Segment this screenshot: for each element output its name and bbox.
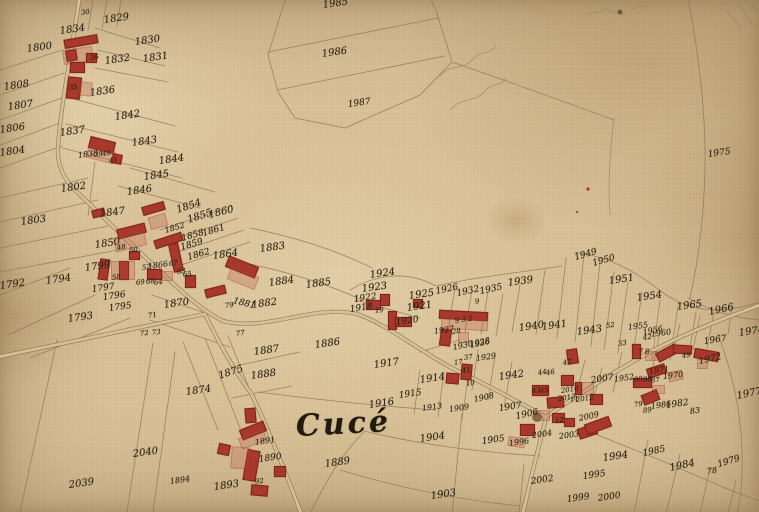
parcel-number-label: 1999	[566, 493, 590, 505]
parcel-number-label: 10	[466, 380, 476, 388]
parcel-number-label: 1866	[147, 260, 168, 271]
parcel-number-label: 1890	[258, 453, 282, 465]
parcel-number-label: 1793	[67, 312, 94, 325]
parcel-number-label: 71	[148, 312, 158, 320]
parcel-number-layer: 1834182930180018303618321831180835183618…	[0, 0, 759, 512]
parcel-number-label: 41	[462, 367, 472, 375]
parcel-number-label: 1994	[602, 451, 629, 464]
parcel-number-label: 1804	[0, 146, 26, 159]
parcel-number-label: 49	[682, 352, 692, 360]
parcel-number-label: 35	[69, 84, 79, 92]
parcel-number-label: 1975	[707, 148, 731, 160]
parcel-number-label: 1844	[158, 154, 185, 167]
parcel-number-label: 2000	[597, 492, 621, 504]
parcel-number-label: 1941	[541, 320, 568, 333]
parcel-number-label: 48	[117, 244, 127, 252]
parcel-number-label: 72	[140, 330, 150, 338]
parcel-number-label: 1974	[738, 326, 759, 339]
parcel-number-label: 1909	[448, 403, 469, 414]
parcel-number-label: 1972	[698, 353, 722, 367]
parcel-number-label: 1870	[163, 298, 190, 311]
parcel-number-label: 1965	[676, 300, 703, 313]
parcel-number-label: 17	[454, 359, 464, 367]
parcel-number-label: 1831	[142, 52, 169, 65]
parcel-number-label: 2009	[578, 411, 600, 423]
parcel-number-label: 64	[154, 279, 164, 287]
parcel-number-label: 1986	[321, 47, 348, 60]
parcel-number-label: 1995	[582, 470, 606, 482]
parcel-number-label: 87	[651, 377, 661, 385]
cadastral-map: 1834182930180018303618321831180835183618…	[0, 0, 759, 512]
parcel-number-label: 1860	[208, 205, 235, 221]
parcel-number-label: 2007	[590, 374, 614, 386]
parcel-number-label: 1802	[60, 182, 87, 195]
parcel-number-label: 1875	[217, 364, 244, 381]
parcel-number-label: 46	[546, 369, 556, 377]
parcel-number-label: 1807	[7, 100, 34, 113]
parcel-number-label: 1935	[479, 283, 503, 297]
parcel-number-label: 19	[375, 307, 385, 315]
parcel-number-label: 1954	[636, 291, 663, 304]
parcel-number-label: 1929	[475, 352, 496, 363]
parcel-number-label: 1996	[508, 437, 529, 448]
parcel-number-label: 1837	[59, 126, 86, 139]
parcel-number-label: 2003	[558, 430, 579, 441]
parcel-number-label: 1884	[268, 276, 295, 289]
parcel-number-label: 1792	[0, 279, 26, 292]
parcel-number-label: 1882	[251, 298, 278, 311]
parcel-number-label: 1806	[0, 123, 26, 136]
parcel-number-label: 1885	[305, 278, 332, 291]
parcel-number-label: 58	[112, 274, 122, 282]
parcel-number-label: 47	[563, 359, 573, 367]
parcel-number-label: 1914	[419, 373, 446, 386]
parcel-number-label: 1966	[708, 303, 735, 318]
parcel-number-label: 1834	[59, 24, 86, 37]
parcel-number-label: 1987	[347, 98, 371, 110]
parcel-number-label: 1845	[143, 170, 170, 183]
parcel-number-label: 1904	[419, 432, 446, 445]
parcel-number-label: 45	[540, 387, 550, 395]
parcel-number-label: 73	[152, 329, 162, 337]
parcel-number-label: 1921	[406, 301, 433, 314]
parcel-number-label: 2040	[132, 447, 159, 460]
parcel-number-label: 1967	[703, 335, 727, 347]
parcel-number-label: 1891	[254, 436, 275, 447]
parcel-number-label: 8	[645, 348, 650, 356]
parcel-number-label: 50	[129, 247, 139, 255]
parcel-number-label: 1908	[473, 392, 495, 404]
parcel-number-label: 1888	[250, 369, 277, 382]
parcel-number-label: 1970	[663, 371, 684, 381]
parcel-number-label: 67	[169, 260, 179, 268]
parcel-number-label: 1874	[185, 385, 212, 398]
parcel-number-label: 1847	[99, 207, 126, 220]
parcel-number-label: 1829	[103, 13, 130, 26]
parcel-number-label: 1920	[395, 316, 419, 328]
parcel-number-label: 1830	[134, 35, 161, 48]
parcel-number-label: 1846	[126, 185, 153, 198]
parcel-number-label: 1842	[114, 110, 141, 123]
parcel-number-label: 1794	[45, 274, 72, 287]
parcel-number-label: 9 3 2	[455, 316, 474, 325]
parcel-number-label: 1906	[515, 408, 539, 422]
parcel-number-label: 1803	[20, 215, 47, 228]
parcel-number-label: 1800	[26, 42, 53, 55]
parcel-number-label: 69	[136, 279, 146, 287]
place-name-label: Cucé	[295, 407, 391, 442]
parcel-number-label: 1977	[736, 387, 759, 402]
parcel-number-label: 1960	[650, 328, 671, 339]
parcel-number-label: 1836	[89, 86, 116, 99]
parcel-number-label: 1917	[373, 358, 400, 371]
parcel-number-label: 2004	[531, 429, 552, 440]
parcel-number-label: 1924	[369, 268, 396, 281]
parcel-number-label: 65	[183, 271, 193, 279]
parcel-number-label: 77	[236, 330, 246, 338]
parcel-number-label: 12	[555, 417, 565, 425]
parcel-number-label: 1808	[3, 80, 30, 93]
parcel-number-label: 1905	[481, 435, 505, 447]
parcel-number-label: 1883	[259, 242, 286, 255]
parcel-number-label: 41	[109, 157, 119, 165]
parcel-number-label: 1942	[498, 370, 525, 383]
parcel-number-label: 1893	[213, 480, 240, 493]
parcel-number-label: 1894	[169, 475, 190, 486]
parcel-number-label: 1952	[613, 373, 634, 384]
parcel-number-label: 1939	[507, 276, 534, 289]
parcel-number-label: 2039	[68, 478, 95, 491]
parcel-number-label: 1864	[212, 249, 239, 262]
parcel-number-label: 1985	[642, 445, 666, 459]
parcel-number-label: 1913	[421, 402, 442, 413]
parcel-number-label: 2012	[576, 395, 595, 404]
parcel-number-label: 7	[639, 348, 644, 356]
parcel-number-label: 92	[255, 478, 265, 486]
parcel-number-label: 28	[452, 328, 462, 336]
parcel-number-label: 36	[90, 54, 100, 62]
parcel-number-label: 30	[81, 9, 91, 17]
parcel-number-label: 37	[464, 354, 474, 362]
parcel-number-label: 1979	[717, 455, 741, 470]
parcel-number-label: 1915	[398, 389, 422, 401]
parcel-number-label: 1985	[322, 0, 349, 11]
parcel-number-label: 1984	[669, 459, 696, 474]
parcel-number-label: 1843	[131, 136, 158, 149]
parcel-number-label: 33	[618, 340, 628, 348]
parcel-number-label: 1795	[108, 302, 132, 314]
parcel-number-label: 9	[475, 298, 480, 306]
parcel-number-label: 78	[706, 467, 717, 476]
parcel-number-label: 1887	[253, 345, 280, 358]
parcel-number-label: 1982	[665, 399, 689, 411]
parcel-number-label: 1918	[349, 303, 373, 315]
parcel-number-label: 1889	[324, 457, 351, 470]
parcel-number-label: 1799	[84, 261, 111, 274]
parcel-number-label: 1951	[608, 274, 635, 287]
parcel-number-label: 1886	[314, 338, 341, 351]
parcel-number-label: 52	[606, 322, 616, 330]
parcel-number-label: 1903	[430, 489, 457, 502]
parcel-number-label: 83	[689, 407, 700, 416]
parcel-number-label: 2002	[530, 475, 554, 487]
parcel-number-label: 1832	[104, 54, 131, 67]
parcel-number-label: 1943	[576, 325, 603, 338]
parcel-number-label: 1861	[202, 224, 226, 239]
